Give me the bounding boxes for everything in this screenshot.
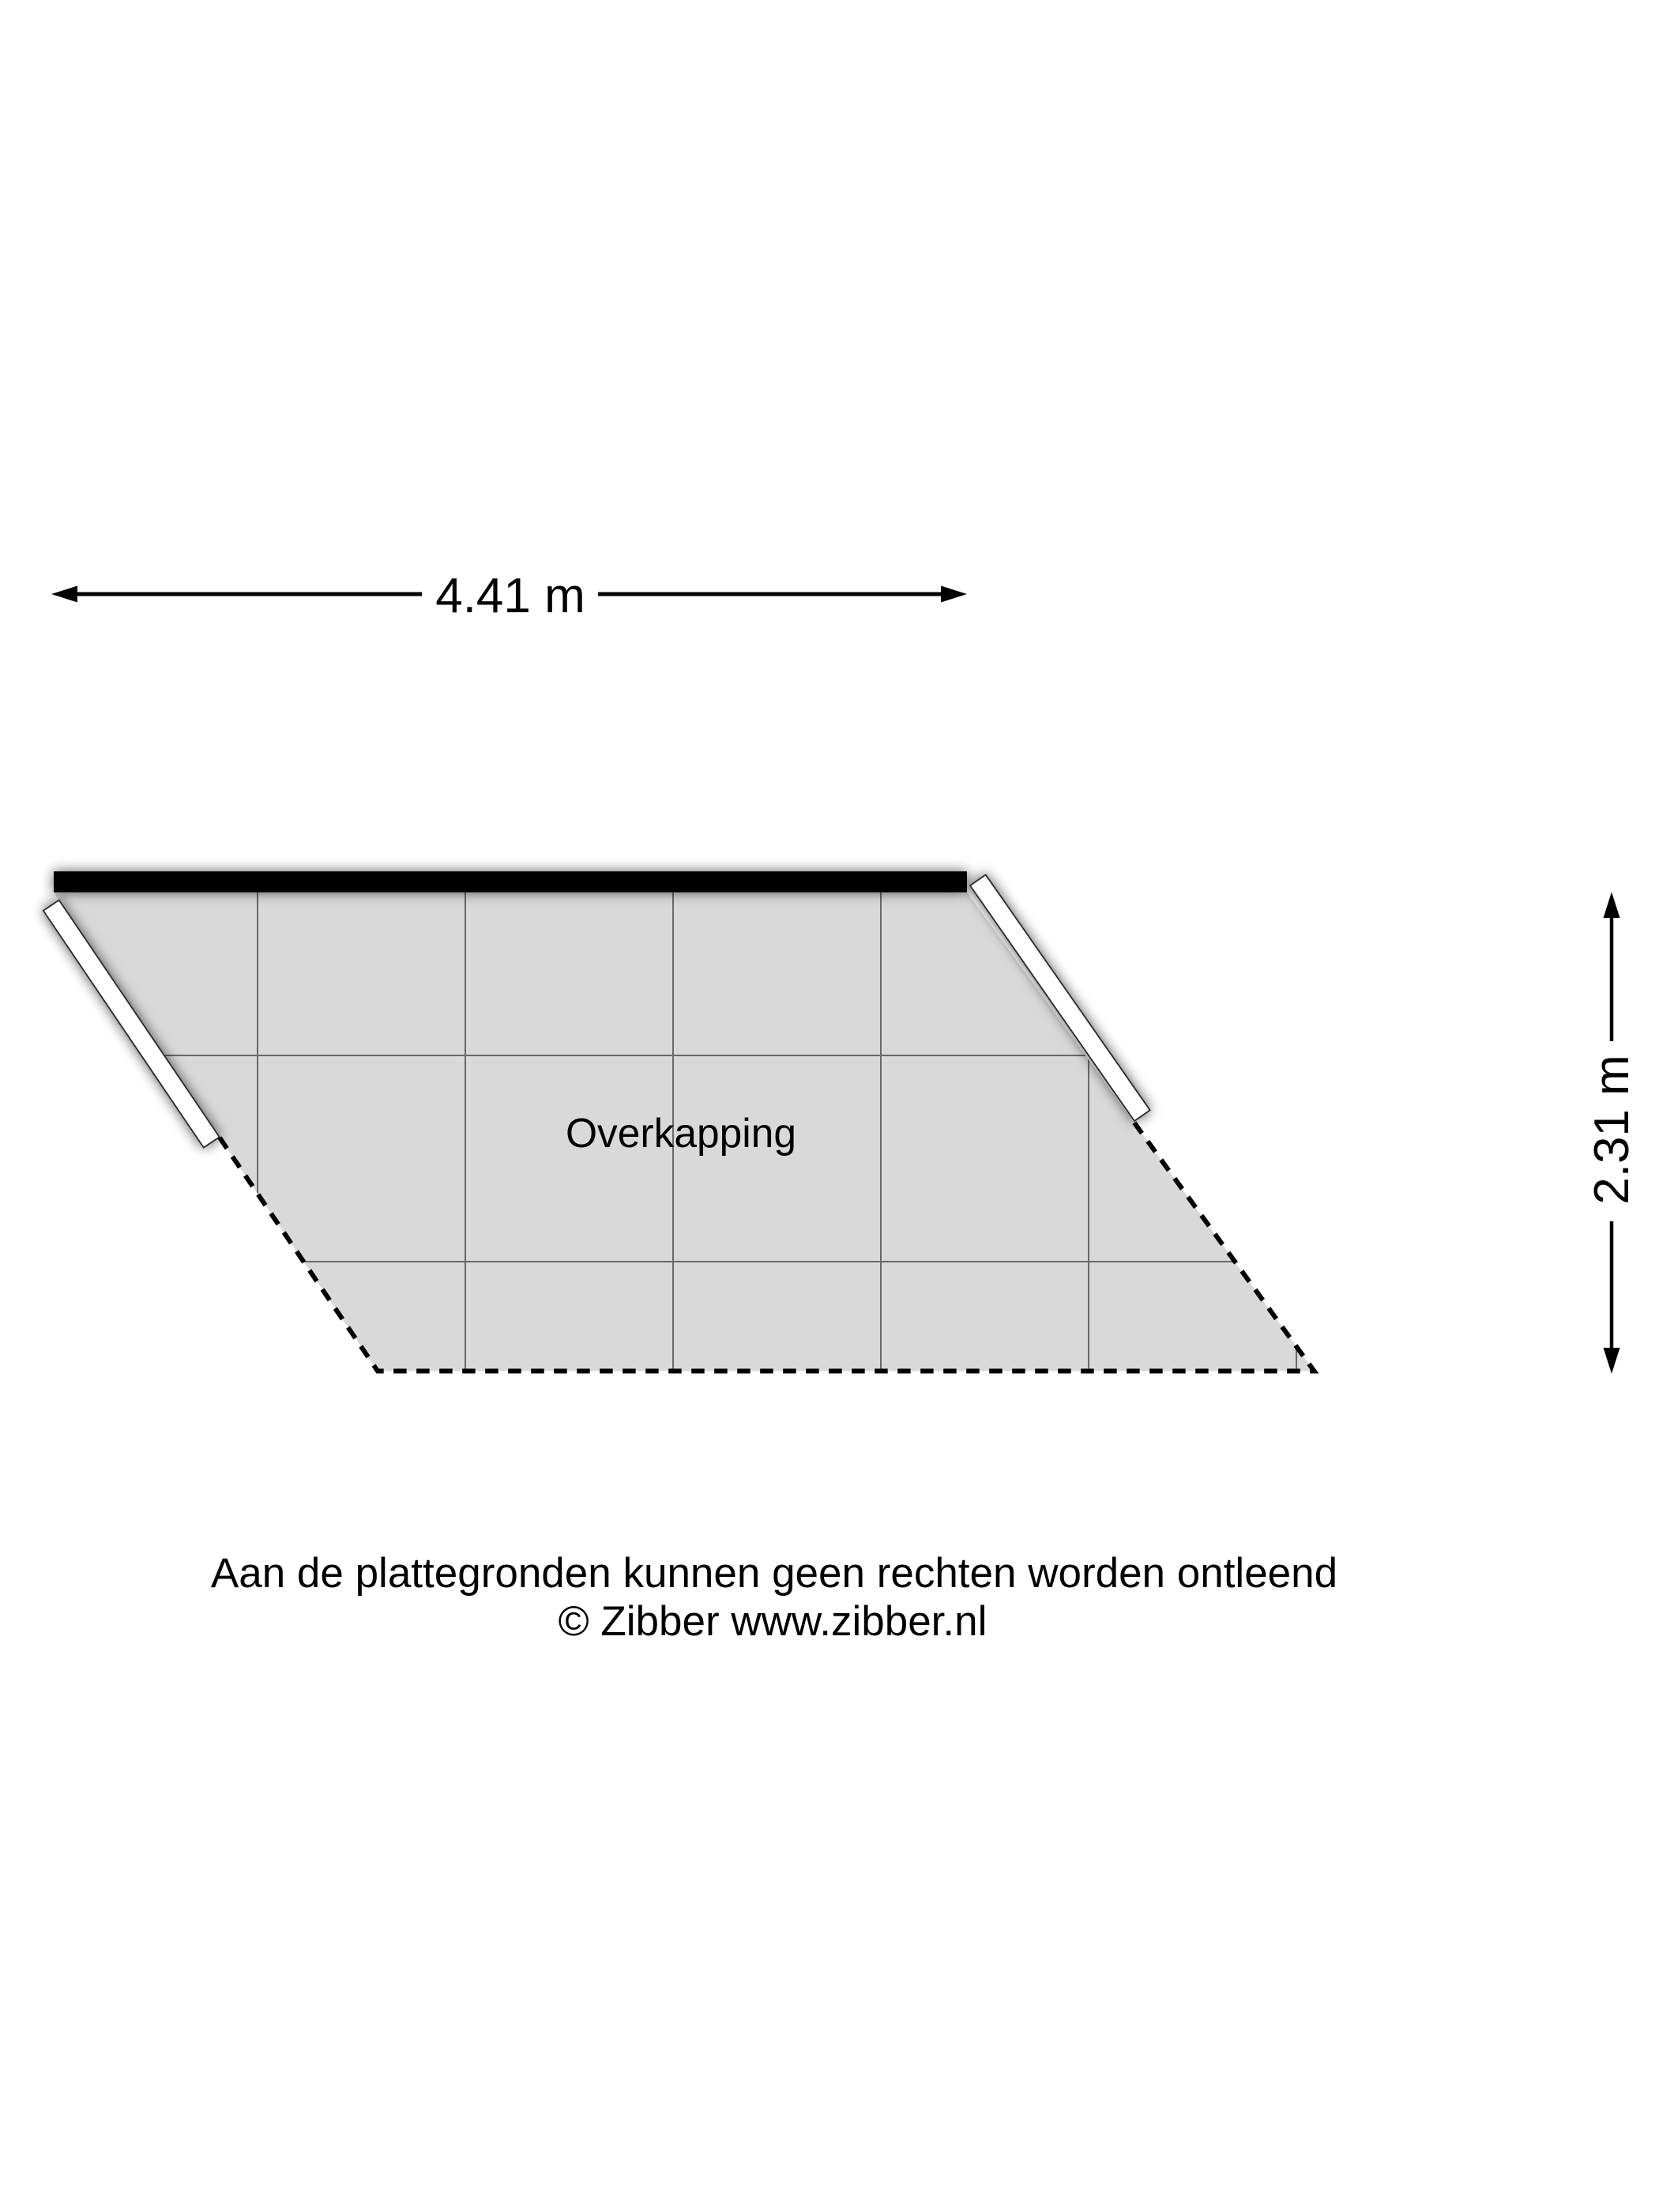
svg-text:Aan de plattegronden kunnen ge: Aan de plattegronden kunnen geen rechten… <box>211 1550 1337 1597</box>
svg-text:4.41 m: 4.41 m <box>435 569 585 623</box>
svg-text:Overkapping: Overkapping <box>566 1110 796 1156</box>
svg-text:2.31 m: 2.31 m <box>1585 1055 1639 1205</box>
svg-text:© Zibber www.zibber.nl: © Zibber www.zibber.nl <box>559 1598 987 1645</box>
